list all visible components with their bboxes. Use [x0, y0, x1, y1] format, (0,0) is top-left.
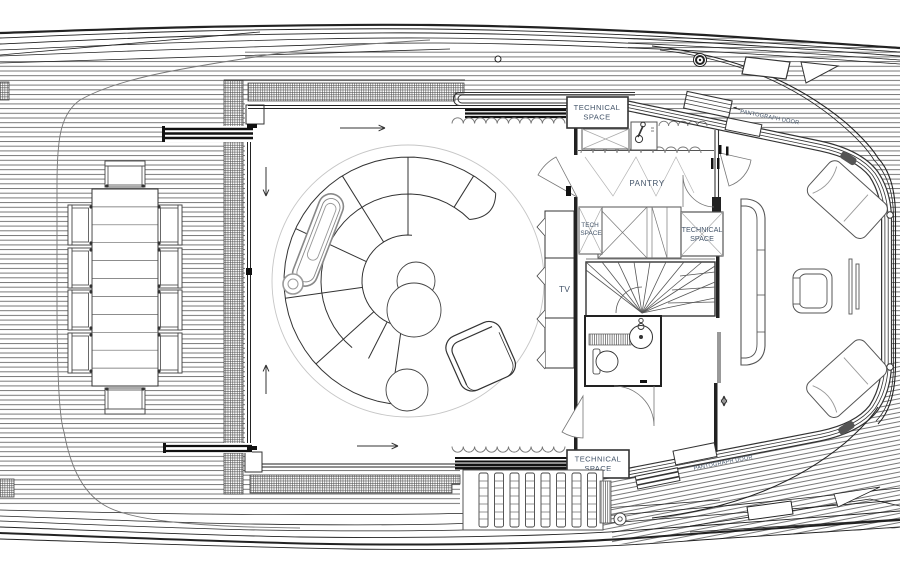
svg-text:TECHNICAL: TECHNICAL: [575, 455, 622, 464]
svg-text:PANTRY: PANTRY: [629, 179, 664, 188]
svg-text:TV: TV: [559, 284, 570, 294]
svg-text:TECH: TECH: [581, 222, 599, 229]
svg-text:TECHNICAL: TECHNICAL: [682, 225, 723, 234]
svg-text:TECHNICAL: TECHNICAL: [574, 103, 621, 112]
svg-text:SPACE: SPACE: [580, 230, 601, 237]
svg-text:SPACE: SPACE: [690, 234, 714, 243]
svg-text:SPACE: SPACE: [583, 113, 610, 122]
